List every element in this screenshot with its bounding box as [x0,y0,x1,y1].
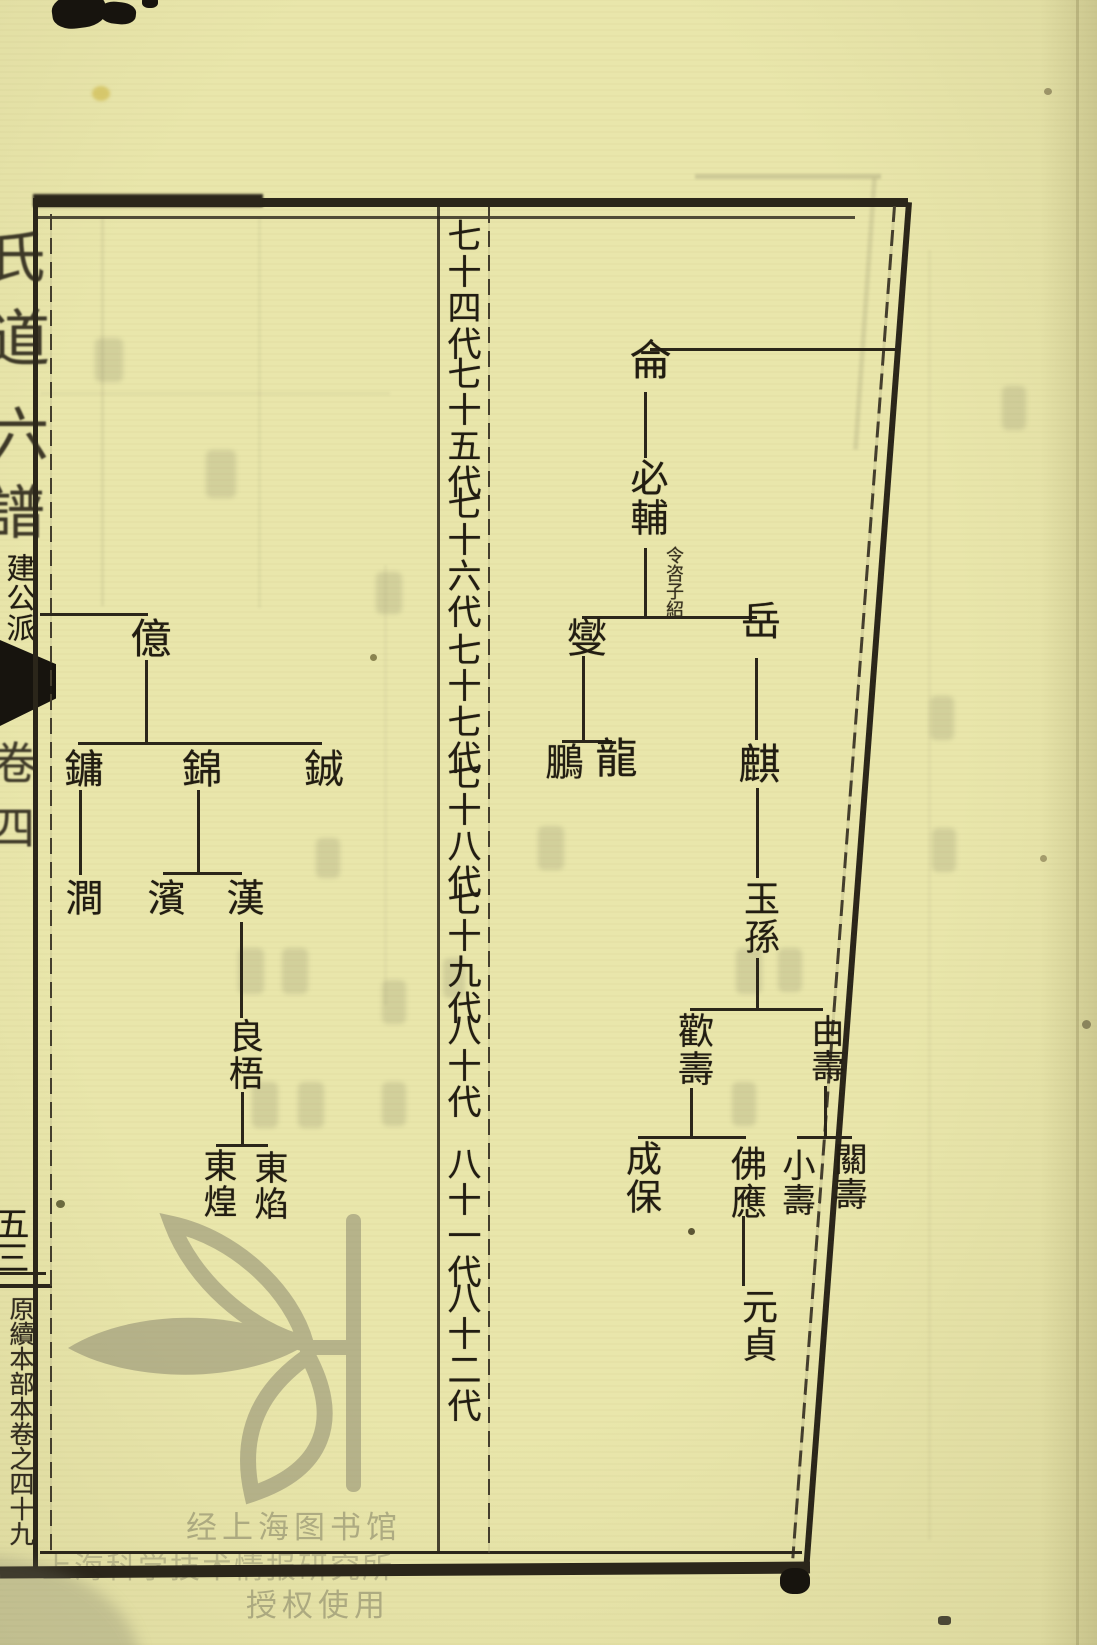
tree-node: 歡壽 [674,1012,710,1088]
scanned-genealogy-page: 经上海图书馆 上海科学技术情报研究所 授权使用 氏 道 六 譜 建公派 卷 四 … [0,0,1097,1645]
tree-node: 岳 [737,600,777,642]
connector-v [240,922,243,1018]
bleedthrough-char [538,826,564,870]
paper-speck [370,654,377,661]
bleedthrough-char [298,1082,324,1128]
generation-label-81: 八十一代 [444,1146,478,1290]
bleedthrough-line-v2 [258,218,261,608]
tree-node: 玉孫 [740,880,776,956]
connector-h [163,872,242,875]
bleedthrough-char [1002,386,1026,430]
tree-node: 燮 [563,617,603,659]
connector-v [755,658,758,740]
bleedthrough-char [382,1082,406,1126]
bleedthrough-line-v1 [101,218,104,606]
bleedthrough-char [778,948,802,992]
right-edge-shadow [1040,0,1097,1645]
bleedthrough-char [932,828,956,872]
connector-v [756,788,759,878]
generation-label-75: 七十五代 [444,356,478,500]
connector-h [690,1008,823,1011]
connector-entry-lun [650,348,895,351]
paper-speck [92,86,110,101]
volume-fragment: 卷 [0,740,32,786]
tree-node: 必輔 [627,458,665,538]
connector-h [638,1136,746,1139]
connector-v [582,656,585,740]
tree-node: 鵬 [542,742,580,782]
bleedthrough-frame-top [695,174,881,179]
bleedthrough-char [382,980,406,1024]
branch-label: 建公派 [4,553,33,643]
volume-fragment: 四 [0,804,32,852]
generation-label-74: 七十四代 [444,218,478,362]
page-number: 五三 [0,1206,26,1274]
frame-left-border [33,198,38,1576]
colophon: 原續本部本卷之四十九 [8,1296,33,1546]
bleedthrough-char [732,1082,756,1126]
bleedthrough-line-v4 [928,250,931,1540]
bleedthrough-frame-right [853,178,877,450]
tree-node: 億 [126,617,167,660]
generation-label-79: 七十九代 [444,882,478,1026]
page-number-divider [0,1272,46,1275]
tree-node: 東煌 [200,1148,234,1220]
torn-edge-mark [99,0,137,26]
bleedthrough-line-v3 [384,565,387,1005]
tree-node: 錦 [178,748,218,790]
tree-node: 濱 [144,878,182,918]
tree-node: 由壽 [809,1014,842,1084]
watermark-line-1: 经上海图书馆 [186,1502,402,1547]
connector-v [79,790,82,875]
right-edge-line [1076,0,1079,1645]
torn-edge-mark [142,0,158,8]
connector-v [690,1088,693,1136]
tree-node: 佛應 [727,1145,763,1221]
connector-v [241,1092,244,1144]
connector-h [216,1144,268,1147]
bleedthrough-char [930,696,954,740]
tree-node: 鋮 [300,748,340,790]
connector-h [582,616,757,619]
paper-speck [56,1200,65,1208]
bleedthrough-char [376,572,402,614]
connector-v [145,660,148,743]
frame-right-border-inner [791,206,896,1558]
connector-v [742,1216,745,1286]
tree-node: 漢 [223,878,261,918]
bleedthrough-char [316,838,340,878]
tree-node: 小壽 [780,1148,813,1218]
watermark-line-3: 授权使用 [246,1580,390,1625]
ink-blot-bottom-right [780,1568,810,1594]
generation-label-80: 八十代 [444,1012,478,1120]
generation-label-77: 七十七代 [444,632,478,776]
tree-node: 侖 [626,338,668,382]
connector-h [797,1136,852,1139]
tree-node: 龍 [592,736,634,780]
frame-bottom-border-inner [40,1551,802,1554]
frame-top-smudge [33,194,263,207]
connector-v [824,1086,827,1136]
page-number-divider [0,1284,52,1288]
connector-entry-yi [40,613,148,616]
generation-label-76: 七十六代 [444,486,478,630]
paper-speck [688,1228,695,1235]
tree-node: 麒 [735,742,777,786]
connector-h [78,742,322,745]
tree-node-annotation: 令咨子紹 [664,546,682,618]
tree-node: 元貞 [738,1288,774,1364]
paper-speck [938,1616,951,1625]
tree-node: 澗 [62,878,100,918]
connector-v [644,548,647,618]
frame-left-border-inner [50,214,52,1552]
bleedthrough-char [95,338,123,382]
connector-v [197,790,200,872]
tree-node: 東焰 [251,1150,285,1222]
bleedthrough-char [206,450,236,498]
tree-node: 成保 [622,1140,658,1216]
generation-column-right-rule [488,207,490,1553]
spine-black-tab [0,640,56,726]
tree-node: 關壽 [832,1142,865,1212]
connector-v [756,958,759,1008]
generation-label-82: 八十二代 [444,1280,478,1424]
bleedthrough-char [282,948,308,994]
generation-column-left-rule [437,207,440,1553]
generation-label-78: 七十八代 [444,756,478,900]
connector-v [644,392,647,458]
tree-node: 鏞 [60,748,100,790]
tree-node: 良梧 [225,1018,260,1092]
bleedthrough-line-h1 [40,392,390,395]
